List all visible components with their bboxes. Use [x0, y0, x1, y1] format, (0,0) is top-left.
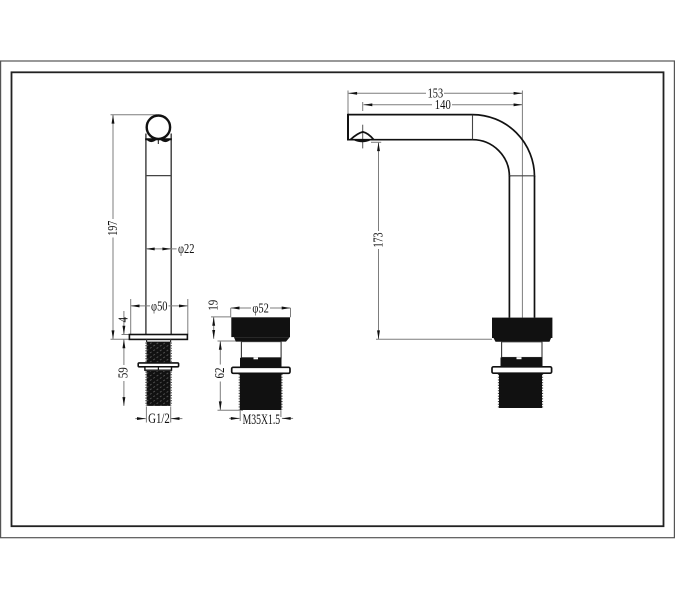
svg-text:φ22: φ22	[178, 242, 195, 257]
svg-text:4: 4	[117, 317, 132, 323]
svg-text:G1/2: G1/2	[148, 411, 170, 427]
svg-text:φ50: φ50	[151, 299, 168, 314]
svg-text:197: 197	[106, 221, 121, 236]
svg-text:140: 140	[435, 98, 451, 113]
svg-text:19: 19	[206, 300, 221, 311]
svg-text:59: 59	[117, 367, 132, 378]
svg-text:173: 173	[371, 233, 386, 248]
svg-text:62: 62	[213, 368, 228, 379]
svg-text:M35X1.5: M35X1.5	[243, 412, 281, 428]
svg-text:φ52: φ52	[252, 301, 269, 316]
